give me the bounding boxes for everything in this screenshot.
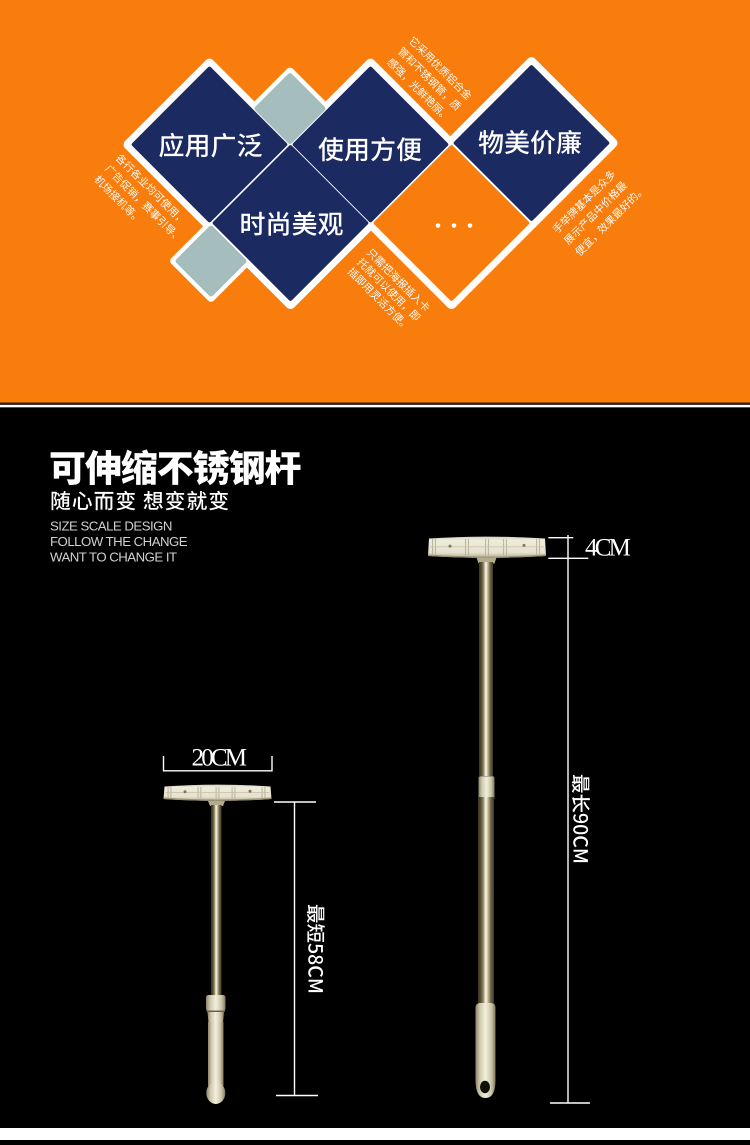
svg-text:SIZE SCALE DESIGN: SIZE SCALE DESIGN — [50, 519, 172, 534]
svg-text:WANT TO CHANGE IT: WANT TO CHANGE IT — [50, 550, 177, 565]
svg-text:20CM: 20CM — [192, 745, 247, 772]
svg-text:4CM: 4CM — [585, 535, 631, 562]
svg-text:FOLLOW THE CHANGE: FOLLOW THE CHANGE — [50, 534, 188, 549]
